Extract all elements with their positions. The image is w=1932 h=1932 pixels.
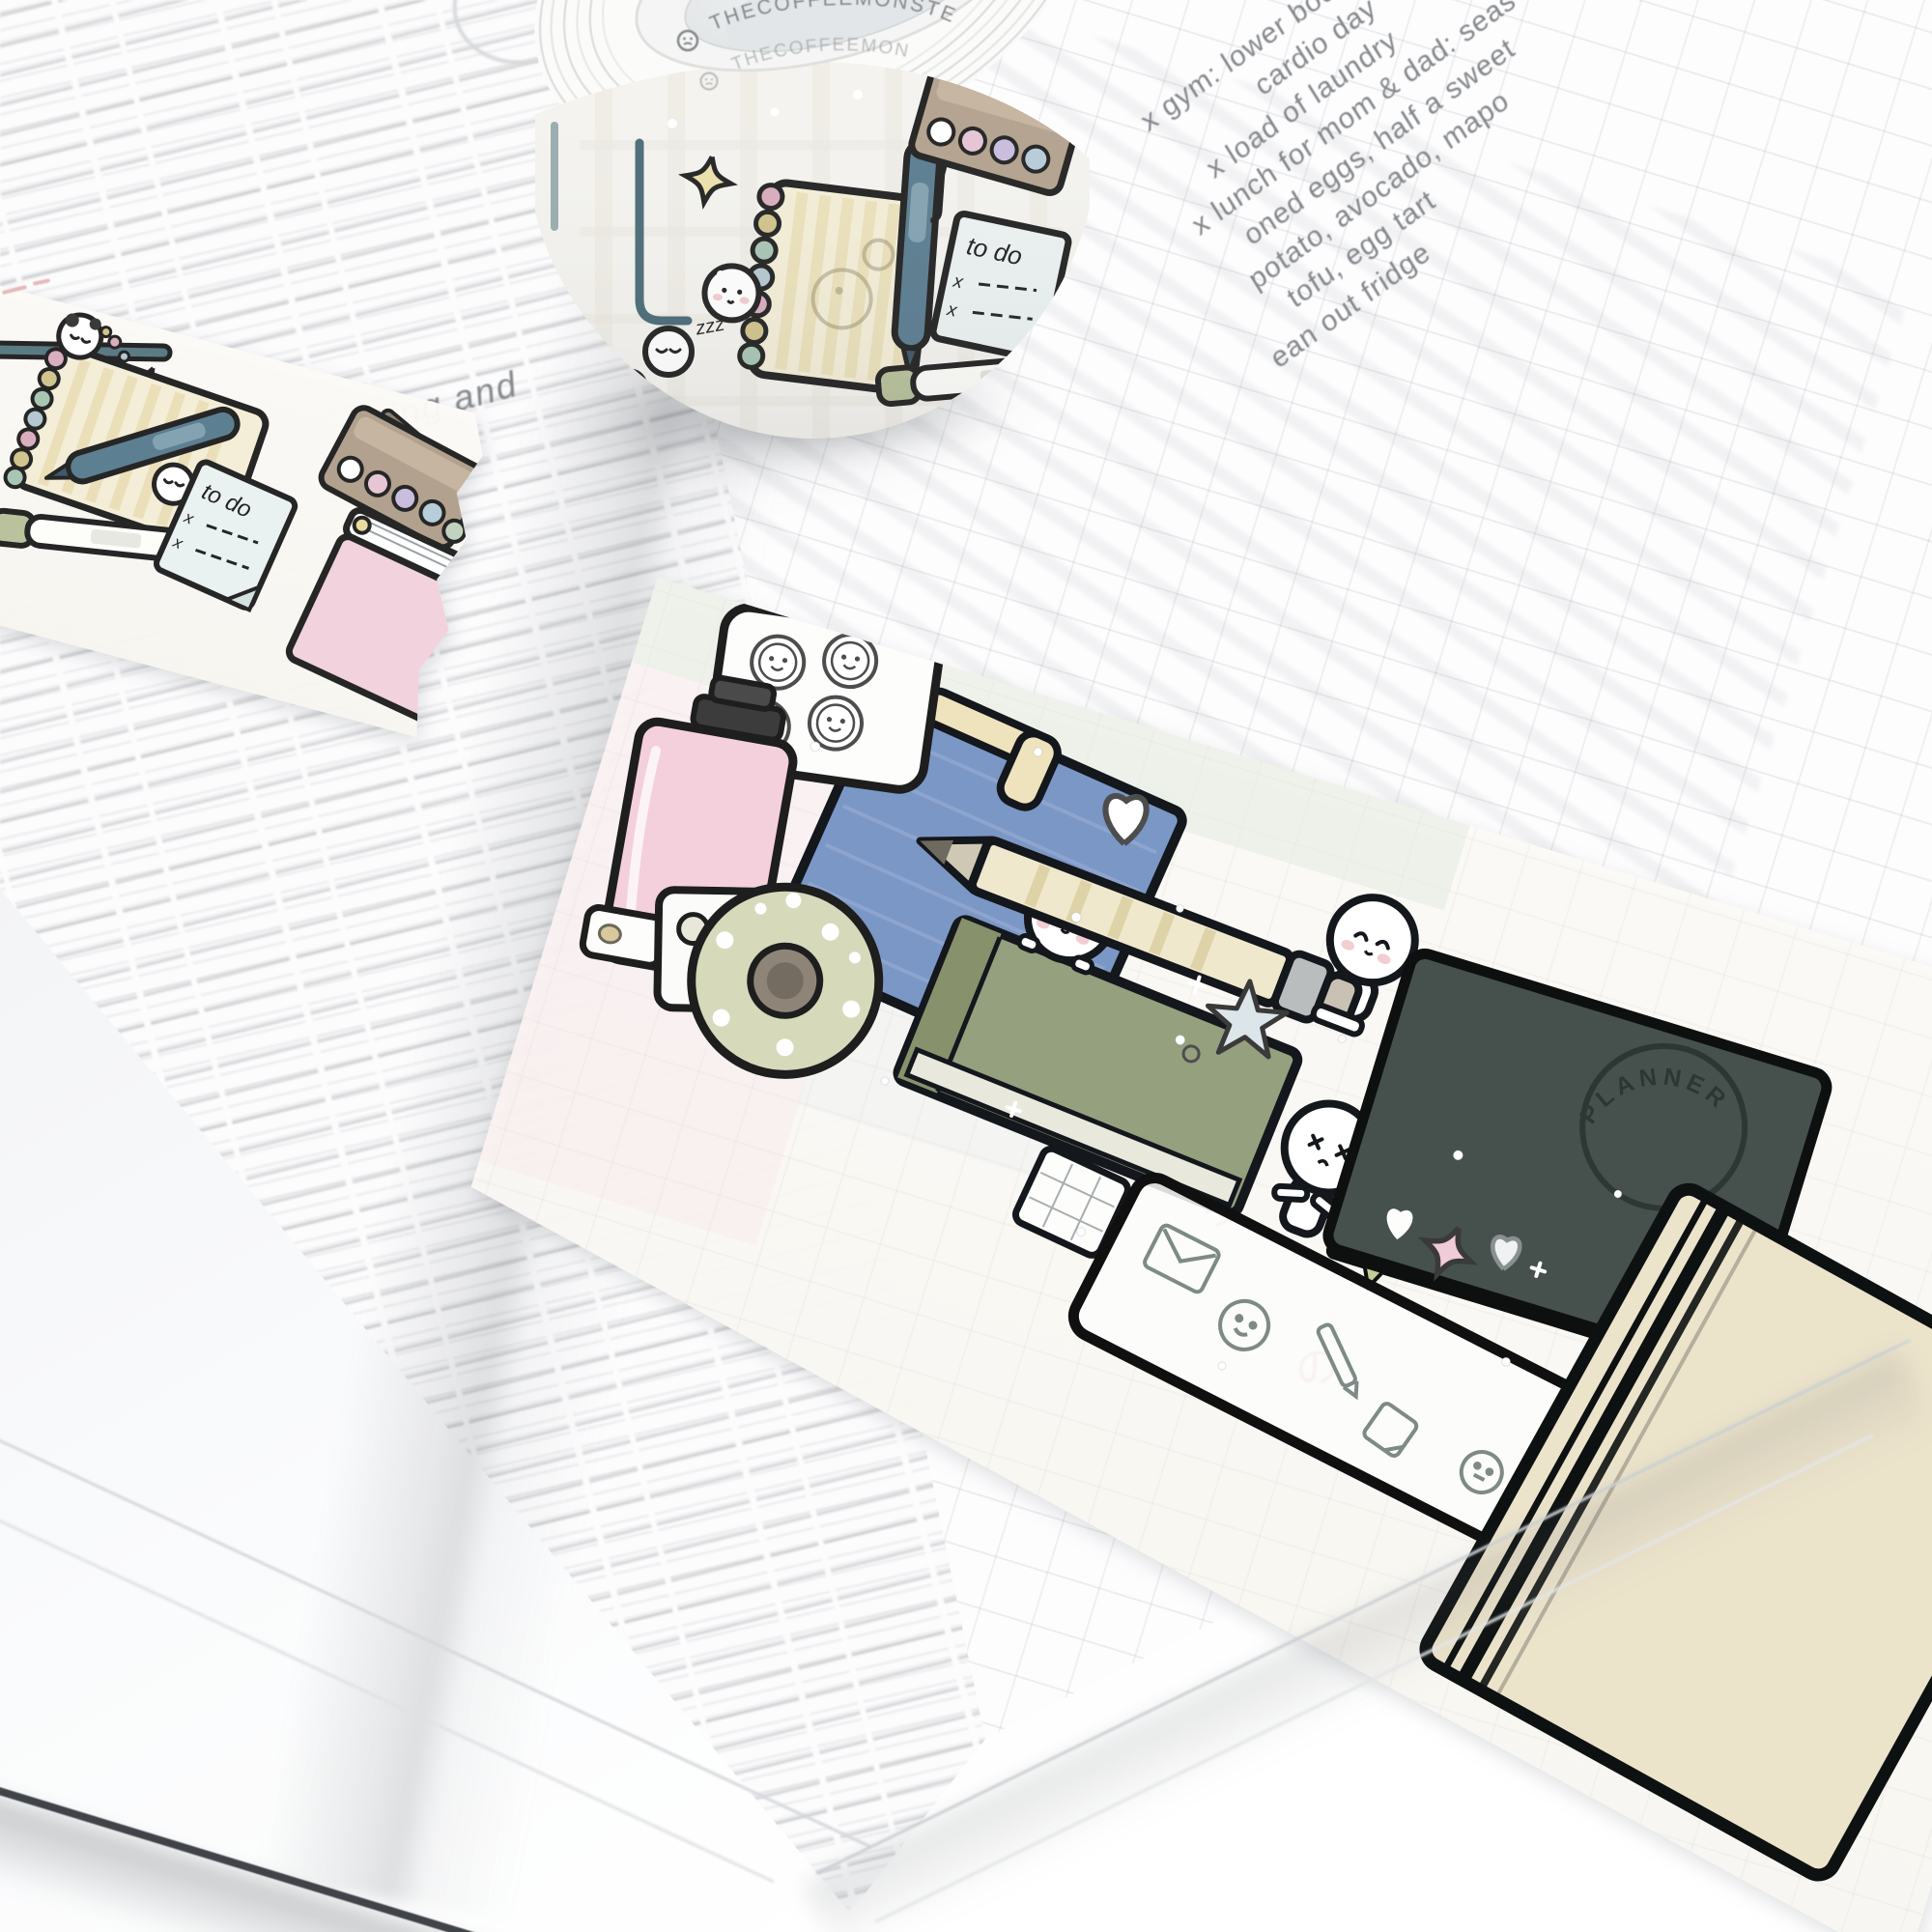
pink-blob-icon	[614, 371, 645, 402]
washi-strip-main-wrap: どころって けっ の DAY FREE	[618, 565, 1932, 1531]
washi-tape-roll: zzz	[522, 0, 1101, 473]
photo-scene: thing and other: x gym: lower body weigh…	[0, 0, 1932, 1932]
